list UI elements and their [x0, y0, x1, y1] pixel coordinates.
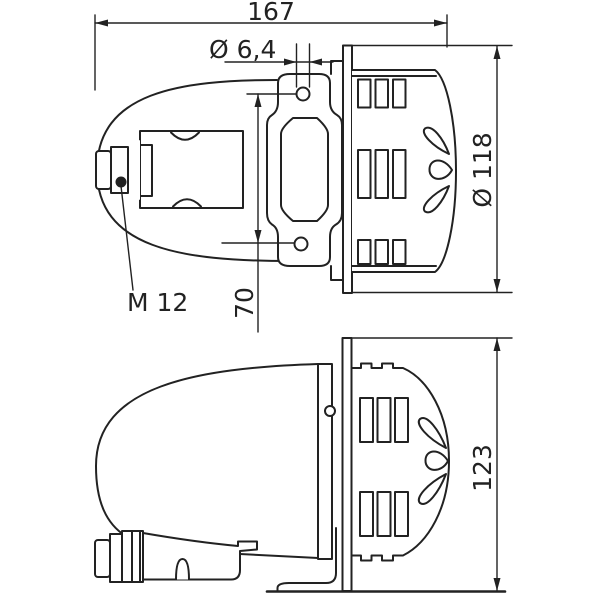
flange-screw	[325, 406, 335, 416]
dim-body-diameter-label: Ø 118	[468, 132, 497, 207]
dim-thread-label: M 12	[127, 288, 188, 317]
leader-line-thread	[121, 186, 133, 290]
dim-overall-height-label: 123	[468, 444, 497, 492]
dim-overall-length-label: 167	[247, 0, 295, 26]
terminal-box	[140, 131, 243, 208]
arrow-spacing-up-icon	[255, 94, 262, 107]
motor-end-flange	[318, 364, 332, 559]
bracket-hole-top	[297, 88, 310, 101]
arrow-height-down-icon	[494, 578, 501, 591]
arrow-height-up-icon	[494, 338, 501, 351]
motor-housing-outline	[96, 364, 318, 558]
wall-plate-edge	[343, 338, 352, 591]
arrow-spacing-down-icon	[255, 230, 262, 243]
drawing-svg: 167 Ø 6,4 70 Ø 118 M 12	[0, 0, 600, 600]
horn-outline	[352, 364, 449, 561]
cable-gland-cap	[95, 540, 110, 577]
arrow-hole-right-icon	[310, 59, 323, 66]
top-view-siren-side	[96, 46, 456, 294]
dim-hole-diameter-label: Ø 6,4	[209, 35, 276, 64]
bracket-tab-bottom	[331, 266, 343, 280]
bracket-tab-top	[331, 61, 343, 74]
mounting-bracket-plate	[267, 74, 342, 266]
wall-plate-edge	[343, 46, 352, 294]
gland-plate-arch	[176, 559, 189, 580]
siren-technical-drawing: 167 Ø 6,4 70 Ø 118 M 12	[0, 0, 600, 600]
arrow-hole-left-icon	[284, 59, 297, 66]
cable-gland-cap	[96, 151, 111, 189]
bracket-hole-bottom	[295, 238, 308, 251]
arrow-left-icon	[95, 20, 108, 27]
cable-gland-ring	[110, 534, 122, 582]
gland-base-plate	[143, 533, 257, 580]
horn-outline	[352, 70, 456, 272]
arrow-right-icon	[434, 20, 447, 27]
bottom-view-siren-mounted	[95, 338, 505, 592]
dim-hole-spacing-label: 70	[230, 287, 259, 319]
cable-gland-neck	[128, 140, 140, 200]
arrow-diameter-down-icon	[494, 279, 501, 292]
arrow-diameter-up-icon	[494, 46, 501, 59]
